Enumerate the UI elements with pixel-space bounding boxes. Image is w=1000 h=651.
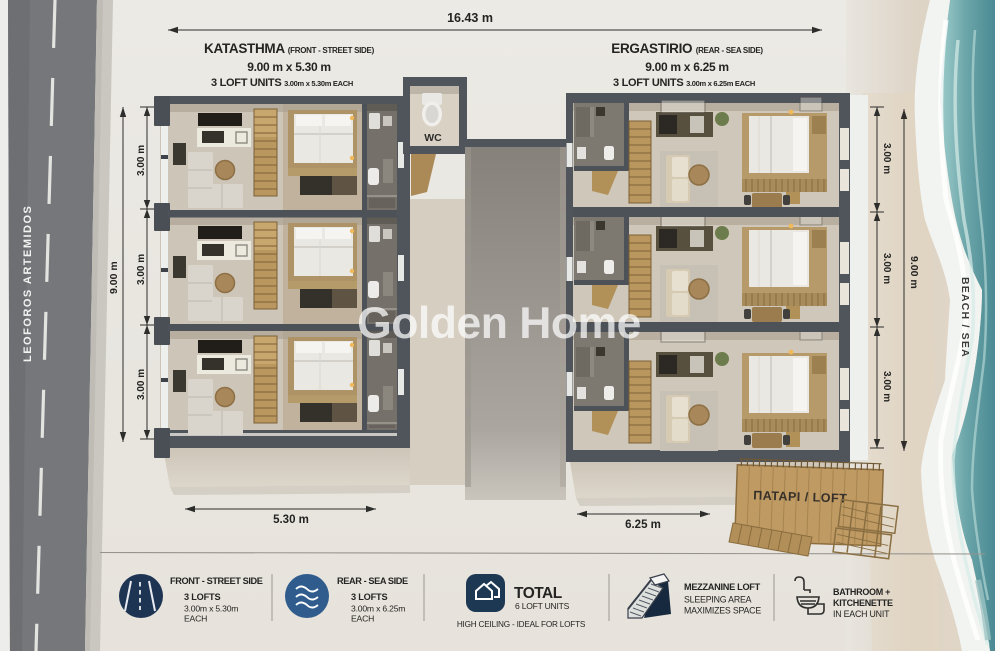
svg-text:9.00 m x 6.25 m: 9.00 m x 6.25 m [645,60,729,74]
svg-text:16.43 m: 16.43 m [447,11,493,25]
svg-text:3.00 m: 3.00 m [136,369,147,400]
svg-text:Golden Home: Golden Home [357,299,641,348]
svg-text:MEZZANINE LOFT: MEZZANINE LOFT [684,582,761,592]
svg-text:3.00 m: 3.00 m [881,371,892,402]
svg-text:3 LOFT UNITS 3.00m x 5.30m EAC: 3 LOFT UNITS 3.00m x 5.30m EACH [211,77,353,89]
svg-text:9.00 m: 9.00 m [108,261,120,294]
svg-text:3.00 m: 3.00 m [136,254,147,285]
svg-text:MAXIMIZES SPACE: MAXIMIZES SPACE [684,606,761,616]
svg-text:HIGH CEILING - IDEAL FOR LOFTS: HIGH CEILING - IDEAL FOR LOFTS [457,620,586,629]
svg-text:9.00 m x 5.30 m: 9.00 m x 5.30 m [247,60,331,74]
svg-text:3.00 m: 3.00 m [881,253,892,284]
svg-text:EACH: EACH [351,614,374,624]
svg-text:3 LOFTS: 3 LOFTS [351,592,387,602]
svg-text:REAR - SEA SIDE: REAR - SEA SIDE [337,576,408,586]
svg-text:WC: WC [424,132,442,144]
svg-text:IN EACH UNIT: IN EACH UNIT [833,609,890,619]
svg-text:3.00 m: 3.00 m [136,145,147,176]
svg-text:BATHROOM +: BATHROOM + [833,587,890,597]
svg-text:EACH: EACH [184,614,207,624]
svg-text:3 LOFTS: 3 LOFTS [184,592,220,602]
svg-text:9.00 m: 9.00 m [908,256,920,289]
svg-text:6 LOFT UNITS: 6 LOFT UNITS [515,601,570,611]
svg-text:KITCHENETTE: KITCHENETTE [833,598,893,608]
svg-text:3.00 m: 3.00 m [881,143,892,174]
svg-text:3.00m x 6.25m: 3.00m x 6.25m [351,604,405,614]
svg-text:LEOFOROS ARTEMIDOS: LEOFOROS ARTEMIDOS [22,205,34,362]
svg-text:TOTAL: TOTAL [514,585,562,602]
svg-text:3.00m x 5.30m: 3.00m x 5.30m [184,604,238,614]
svg-text:6.25 m: 6.25 m [625,519,661,531]
svg-text:SLEEPING AREA: SLEEPING AREA [684,595,752,605]
svg-text:3 LOFT UNITS 3.00m x 6.25m EAC: 3 LOFT UNITS 3.00m x 6.25m EACH [613,77,755,89]
svg-text:FRONT - STREET SIDE: FRONT - STREET SIDE [170,576,263,586]
svg-text:BEACH / SEA: BEACH / SEA [959,277,971,358]
svg-text:5.30 m: 5.30 m [273,514,309,526]
